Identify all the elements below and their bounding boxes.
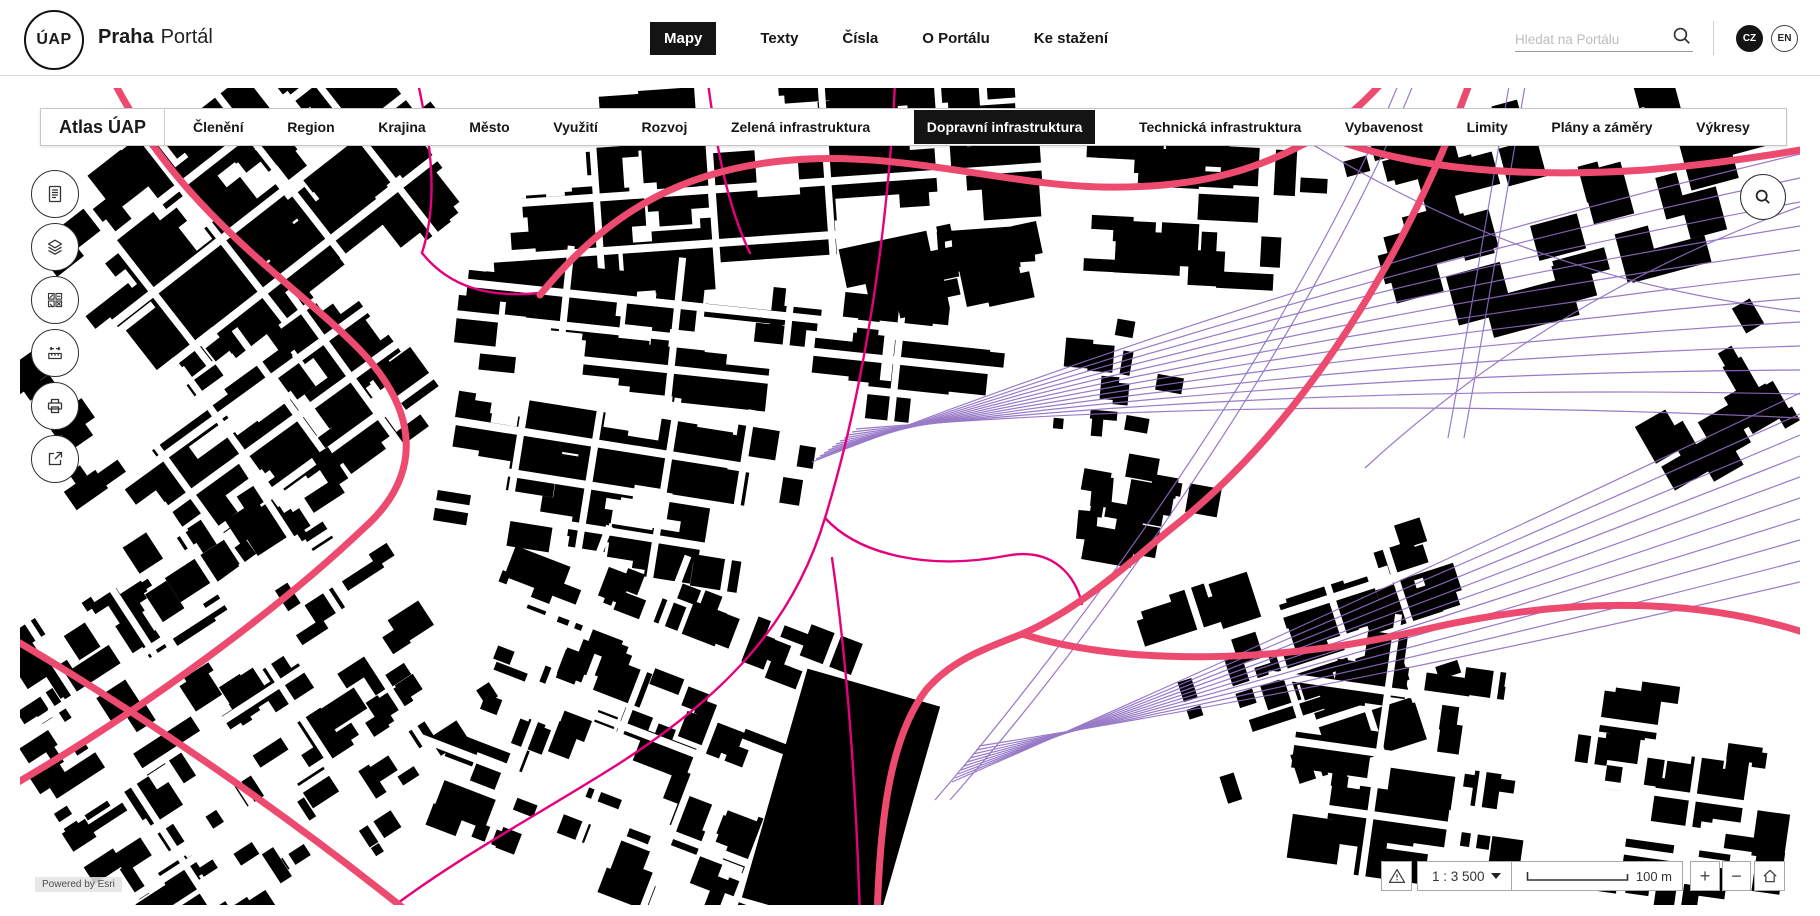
uap-logo-text: ÚAP (36, 31, 71, 49)
share-icon (45, 449, 65, 469)
tool-print-button[interactable] (31, 382, 79, 430)
brand-regular: Portál (161, 26, 213, 48)
atlas-title: Atlas ÚAP (41, 109, 165, 145)
tab-technicka-infrastruktura[interactable]: Technická infrastruktura (1139, 119, 1301, 135)
esri-attribution: Powered by Esri (35, 877, 122, 892)
warning-icon (1387, 866, 1407, 886)
search-icon[interactable] (1671, 25, 1693, 47)
brand-title: PrahaPortál (98, 26, 213, 49)
tab-mesto[interactable]: Město (469, 119, 509, 135)
tab-vybavenost[interactable]: Vybavenost (1345, 119, 1423, 135)
nav-o-portalu[interactable]: O Portálu (922, 30, 990, 47)
nav-cisla[interactable]: Čísla (842, 30, 878, 47)
measure-icon (45, 343, 65, 363)
chevron-down-icon (1491, 873, 1501, 879)
nav-texty[interactable]: Texty (760, 30, 798, 47)
map-canvas[interactable] (20, 88, 1800, 905)
tab-zelena-infrastruktura[interactable]: Zelená infrastruktura (731, 119, 870, 135)
brand-bold: Praha (98, 26, 154, 48)
print-icon (45, 396, 65, 416)
home-extent-button[interactable] (1754, 861, 1785, 891)
map-search-button[interactable] (1740, 174, 1786, 220)
tab-cleneni[interactable]: Členění (193, 119, 244, 135)
tab-vykresy[interactable]: Výkresy (1696, 119, 1750, 135)
scale-bar-graphic (1526, 870, 1629, 882)
tool-legend-button[interactable] (31, 276, 79, 324)
map-warning-button[interactable] (1381, 861, 1412, 891)
tab-krajina[interactable]: Krajina (378, 119, 425, 135)
tab-dopravni-infrastruktura[interactable]: Dopravní infrastruktura (914, 110, 1096, 144)
nav-ke-stazeni[interactable]: Ke stažení (1034, 30, 1108, 47)
uap-logo[interactable]: ÚAP (24, 10, 84, 70)
tool-report-button[interactable] (31, 170, 79, 218)
portal-search-input[interactable] (1515, 32, 1667, 47)
tab-rozvoj[interactable]: Rozvoj (641, 119, 687, 135)
report-icon (45, 184, 65, 204)
layers-icon (45, 237, 65, 257)
header-right: CZ EN (1515, 0, 1798, 76)
tab-plany-a-zamery[interactable]: Plány a záměry (1551, 119, 1652, 135)
tool-share-button[interactable] (31, 435, 79, 483)
scale-select[interactable]: 1 : 3 500 (1418, 862, 1512, 890)
scale-bar-label: 100 m (1636, 869, 1672, 884)
home-icon (1760, 866, 1780, 886)
tool-rail (31, 170, 79, 483)
portal-header: ÚAP PrahaPortál Mapy Texty Čísla O Portá… (0, 0, 1820, 76)
top-navigation: Mapy Texty Čísla O Portálu Ke stažení (650, 0, 1108, 76)
tab-region[interactable]: Region (287, 119, 334, 135)
lang-en-button[interactable]: EN (1771, 25, 1798, 52)
nav-mapy[interactable]: Mapy (650, 22, 716, 55)
map-viewport: Atlas ÚAP Členění Region Krajina Město V… (20, 88, 1800, 905)
scale-value: 1 : 3 500 (1432, 869, 1485, 884)
atlas-toolbar: Atlas ÚAP Členění Region Krajina Město V… (40, 108, 1787, 146)
tab-limity[interactable]: Limity (1467, 119, 1508, 135)
search-icon (1752, 186, 1774, 208)
legend-icon (45, 290, 65, 310)
header-divider (1713, 21, 1714, 55)
zoom-in-button[interactable]: + (1690, 861, 1720, 891)
tab-vyuziti[interactable]: Využití (553, 119, 598, 135)
atlas-tabs: Členění Region Krajina Město Využití Roz… (165, 109, 1786, 145)
tool-measure-button[interactable] (31, 329, 79, 377)
scale-bar: 100 m (1512, 862, 1682, 890)
lang-cz-button[interactable]: CZ (1736, 25, 1763, 52)
zoom-out-button[interactable]: − (1722, 861, 1751, 891)
tool-layers-button[interactable] (31, 223, 79, 271)
portal-search (1515, 25, 1693, 52)
scale-control: 1 : 3 500 100 m (1417, 861, 1683, 891)
